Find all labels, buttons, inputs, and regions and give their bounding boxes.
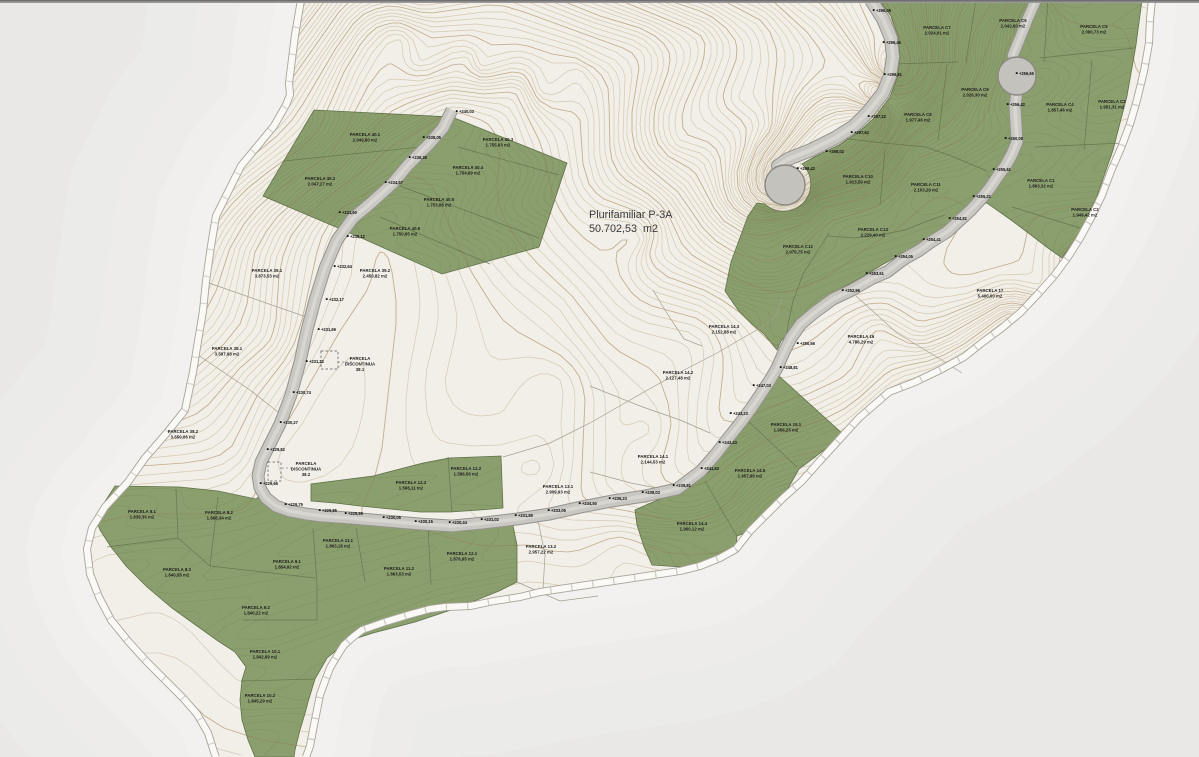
svg-text:+232,17: +232,17 bbox=[329, 297, 345, 302]
svg-text:PARCELA C72.024,01 m2: PARCELA C72.024,01 m2 bbox=[923, 25, 951, 36]
svg-text:+229,75: +229,75 bbox=[288, 502, 304, 507]
svg-text:+297,62: +297,62 bbox=[854, 130, 870, 135]
svg-text:PARCELA 38.13.597,98 m2: PARCELA 38.13.597,98 m2 bbox=[212, 346, 243, 357]
svg-text:+229,85: +229,85 bbox=[322, 508, 338, 513]
svg-text:+296,05: +296,05 bbox=[876, 8, 892, 13]
svg-text:+234,57: +234,57 bbox=[388, 180, 404, 185]
svg-text:+255,21: +255,21 bbox=[976, 194, 992, 199]
svg-text:+254,41: +254,41 bbox=[926, 237, 942, 242]
svg-text:+256,42: +256,42 bbox=[1010, 102, 1026, 107]
svg-text:+256,65: +256,65 bbox=[1019, 71, 1035, 76]
svg-text:PARCELA 8.11.839,36 m2: PARCELA 8.11.839,36 m2 bbox=[128, 509, 157, 520]
svg-text:+232,64: +232,64 bbox=[337, 264, 353, 269]
svg-text:+247,03: +247,03 bbox=[756, 383, 772, 388]
svg-text:PARCELA 39.13.873,53 m2: PARCELA 39.13.873,53 m2 bbox=[252, 268, 283, 279]
svg-text:PARCELA 14.22.127,48 m2: PARCELA 14.22.127,48 m2 bbox=[663, 370, 694, 381]
svg-text:+231,69: +231,69 bbox=[321, 327, 337, 332]
svg-text:PARCELA C21.949,42 m2: PARCELA C21.949,42 m2 bbox=[1071, 207, 1099, 218]
svg-text:PARCELA C62.042,60 m2: PARCELA C62.042,60 m2 bbox=[999, 18, 1027, 29]
svg-text:+231,89: +231,89 bbox=[518, 513, 534, 518]
svg-text:+235,12: +235,12 bbox=[350, 234, 366, 239]
svg-text:+253,61: +253,61 bbox=[869, 271, 885, 276]
svg-text:+239,81: +239,81 bbox=[676, 483, 692, 488]
svg-text:+250,56: +250,56 bbox=[800, 341, 816, 346]
svg-text:Plurifamiliar P-3A: Plurifamiliar P-3A bbox=[589, 209, 673, 221]
svg-text:PARCELA 164.786,29 m2: PARCELA 164.786,29 m2 bbox=[848, 334, 875, 345]
svg-text:+254,05: +254,05 bbox=[898, 254, 914, 259]
svg-text:PARCELA 14.51.957,96 m2: PARCELA 14.51.957,96 m2 bbox=[735, 468, 766, 479]
svg-text:+230,74: +230,74 bbox=[296, 390, 312, 395]
svg-text:PARCELA C31.951,31 m2: PARCELA C31.951,31 m2 bbox=[1098, 99, 1126, 110]
svg-text:+230,27: +230,27 bbox=[283, 420, 299, 425]
svg-text:+238,05: +238,05 bbox=[426, 135, 442, 140]
svg-text:PARCELA 40.31.755,63 m2: PARCELA 40.31.755,63 m2 bbox=[483, 137, 514, 148]
svg-text:PARCELA 39.22.450,82 m2: PARCELA 39.22.450,82 m2 bbox=[360, 268, 391, 279]
svg-text:PARCELA 13.12.909,93 m2: PARCELA 13.12.909,93 m2 bbox=[543, 484, 574, 495]
svg-text:+254,81: +254,81 bbox=[952, 216, 968, 221]
svg-text:PARCELA C132.229,40 m2: PARCELA C132.229,40 m2 bbox=[858, 227, 888, 238]
svg-text:+298,02: +298,02 bbox=[829, 149, 845, 154]
svg-text:PARCELA 40.51.753,08 m2: PARCELA 40.51.753,08 m2 bbox=[424, 197, 455, 208]
svg-text:PARCELA 38.23.650,06 m2: PARCELA 38.23.650,06 m2 bbox=[168, 429, 199, 440]
svg-text:+231,02: +231,02 bbox=[484, 517, 500, 522]
svg-text:+296,46: +296,46 bbox=[886, 40, 902, 45]
svg-text:+234,50: +234,50 bbox=[582, 501, 598, 506]
svg-text:+240,03: +240,03 bbox=[459, 109, 475, 114]
svg-text:PARCELA 10.11.842,69 m2: PARCELA 10.11.842,69 m2 bbox=[250, 649, 281, 660]
svg-text:+298,42: +298,42 bbox=[800, 166, 816, 171]
svg-text:PARCELA 40.22.047,27 m2: PARCELA 40.22.047,27 m2 bbox=[305, 176, 336, 187]
svg-text:PARCELA 11.21.863,53 m2: PARCELA 11.21.863,53 m2 bbox=[384, 566, 415, 577]
svg-text:PARCELA C41.857,46 m2: PARCELA C41.857,46 m2 bbox=[1046, 102, 1074, 113]
svg-text:PARCELA 12.21.586,56 m2: PARCELA 12.21.586,56 m2 bbox=[451, 466, 482, 477]
svg-text:+250,09: +250,09 bbox=[1008, 136, 1024, 141]
svg-text:PARCELA C101.913,59 m2: PARCELA C101.913,59 m2 bbox=[843, 174, 873, 185]
svg-text:PARCELA 11.11.863,18 m2: PARCELA 11.11.863,18 m2 bbox=[323, 538, 354, 549]
svg-text:+296,81: +296,81 bbox=[887, 72, 903, 77]
svg-text:+255,61: +255,61 bbox=[996, 167, 1012, 172]
svg-text:PARCELA 14.41.960,12 m2: PARCELA 14.41.960,12 m2 bbox=[677, 521, 708, 532]
svg-text:+248,81: +248,81 bbox=[783, 365, 799, 370]
svg-text:+229,95: +229,95 bbox=[348, 511, 364, 516]
svg-text:+241,63: +241,63 bbox=[704, 466, 720, 471]
svg-text:PARCELA C52.090,73 m2: PARCELA C52.090,73 m2 bbox=[1080, 24, 1108, 35]
svg-text:+236,23: +236,23 bbox=[612, 496, 628, 501]
svg-text:+230,05: +230,05 bbox=[386, 515, 402, 520]
svg-text:PARCELA 12.31.596,11 m2: PARCELA 12.31.596,11 m2 bbox=[396, 480, 427, 491]
svg-text:PARCELA C92.026,30 m2: PARCELA C92.026,30 m2 bbox=[961, 87, 989, 98]
svg-text:+231,60: +231,60 bbox=[342, 210, 358, 215]
svg-text:+229,66: +229,66 bbox=[263, 481, 279, 486]
svg-text:PARCELA 8.31.840,58 m2: PARCELA 8.31.840,58 m2 bbox=[163, 567, 192, 578]
svg-text:PARCELA 14.32.152,88 m2: PARCELA 14.32.152,88 m2 bbox=[709, 324, 740, 335]
svg-text:PARCELA 40.61.750,95 m2: PARCELA 40.61.750,95 m2 bbox=[390, 226, 421, 237]
svg-text:+236,35: +236,35 bbox=[412, 155, 428, 160]
svg-text:PARCELA 40.12.049,80 m2: PARCELA 40.12.049,80 m2 bbox=[350, 132, 381, 143]
svg-text:50.702,53 m2: 50.702,53 m2 bbox=[589, 223, 658, 235]
svg-text:PARCELA C81.977,46 m2: PARCELA C81.977,46 m2 bbox=[904, 112, 932, 123]
svg-text:PARCELA 9.11.854,92 m2: PARCELA 9.11.854,92 m2 bbox=[273, 559, 302, 570]
svg-text:PARCELA 40.41.754,69 m2: PARCELA 40.41.754,69 m2 bbox=[453, 165, 484, 176]
svg-text:PARCELA 10.21.845,29 m2: PARCELA 10.21.845,29 m2 bbox=[245, 693, 276, 704]
svg-text:PARCELA C112.103,29 m2: PARCELA C112.103,29 m2 bbox=[911, 182, 941, 193]
svg-text:+243,23: +243,23 bbox=[733, 411, 749, 416]
svg-text:+230,44: +230,44 bbox=[452, 520, 468, 525]
svg-text:+233,05: +233,05 bbox=[551, 508, 567, 513]
svg-text:PARCELA 8.21.868,34 m2: PARCELA 8.21.868,34 m2 bbox=[205, 510, 234, 521]
svg-text:PARCELA C11.863,32 m2: PARCELA C11.863,32 m2 bbox=[1027, 178, 1055, 189]
svg-text:PARCELA 9.21.840,22 m2: PARCELA 9.21.840,22 m2 bbox=[242, 605, 271, 616]
svg-text:PARCELA 13.22.957,22 m2: PARCELA 13.22.957,22 m2 bbox=[526, 544, 557, 555]
svg-text:+231,22: +231,22 bbox=[309, 359, 325, 364]
svg-text:PARCELA 12.11.876,95 m2: PARCELA 12.11.876,95 m2 bbox=[447, 551, 478, 562]
svg-text:+243,43: +243,43 bbox=[722, 440, 738, 445]
svg-text:PARCELA 14.12.144,53 m2: PARCELA 14.12.144,53 m2 bbox=[638, 454, 669, 465]
svg-text:PARCELA 175.400,00 m2: PARCELA 175.400,00 m2 bbox=[977, 288, 1004, 299]
svg-text:+238,03: +238,03 bbox=[645, 490, 661, 495]
svg-text:+229,82: +229,82 bbox=[270, 447, 286, 452]
svg-text:+252,96: +252,96 bbox=[845, 288, 861, 293]
svg-text:PARCELA 15.11.956,25 m2: PARCELA 15.11.956,25 m2 bbox=[771, 422, 802, 433]
svg-text:+297,22: +297,22 bbox=[871, 114, 887, 119]
svg-text:PARCELA C122.079,75 m2: PARCELA C122.079,75 m2 bbox=[783, 244, 813, 255]
svg-text:+230,15: +230,15 bbox=[418, 519, 434, 524]
